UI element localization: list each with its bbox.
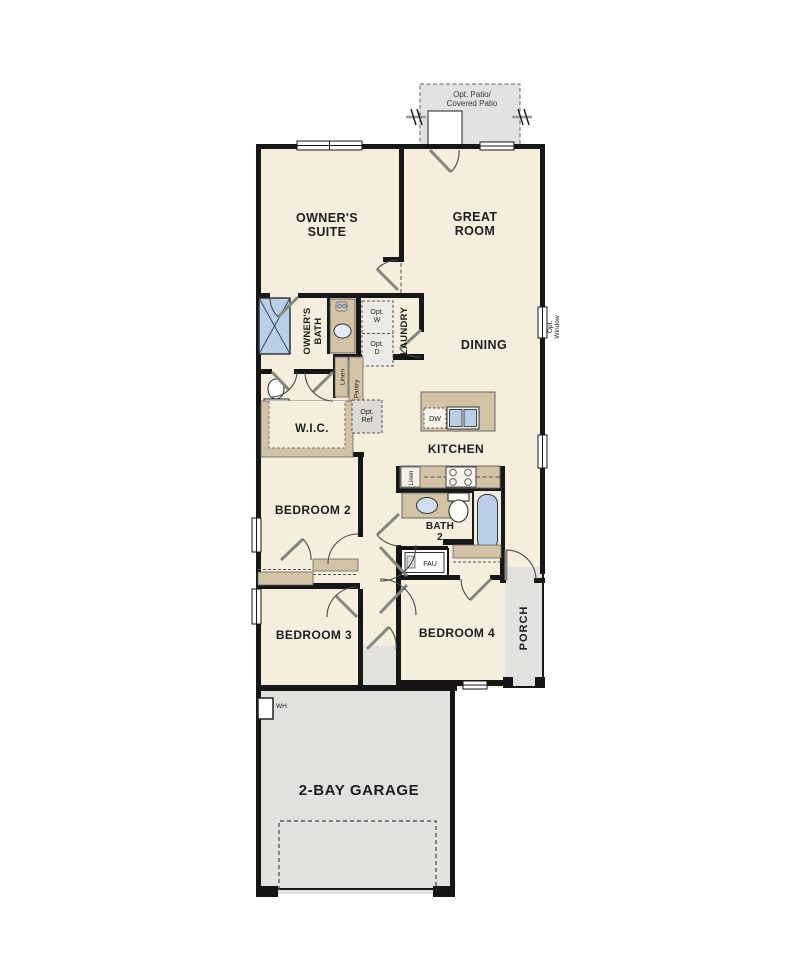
opt-washer-label: Opt. [370,309,383,316]
svg-text:ROOM: ROOM [455,224,496,238]
wic-label: W.I.C. [295,423,329,435]
island-sink [450,410,463,427]
dw-label: DW [429,416,441,423]
great-room-window [480,142,514,150]
porch-label: PORCH [518,606,530,651]
kitchen-island [421,392,495,431]
owners-suite-window [297,141,362,150]
svg-text:Pantry: Pantry [354,379,361,399]
bedroom4-label: BEDROOM 4 [419,626,495,640]
bath2-label: BATH [426,521,454,532]
svg-text:LAUNDRY: LAUNDRY [399,307,410,356]
great-room-label: GREAT [453,210,498,224]
bedroom2-label: BEDROOM 2 [275,503,351,517]
garage-label: 2-BAY GARAGE [299,782,420,799]
pantry-label: Pantry [354,379,361,399]
linen-hall-label: Linen [340,369,347,385]
dining-window [538,435,547,468]
floor-plan: Opt. Patio/ Covered Patio OWNER'S SUITE … [0,0,793,968]
fau-label: FAU [423,561,437,568]
dining-label: DINING [461,338,507,352]
svg-text:OWNER'S: OWNER'S [302,307,313,354]
bathtub [473,490,502,554]
opt-window-label: Opt. Window [547,315,561,338]
bedroom4-window [463,681,487,689]
shower [259,298,290,354]
owners-suite-label: OWNER'S [296,211,358,225]
svg-text:BATH: BATH [313,318,324,345]
kitchen-counter [400,466,500,488]
svg-text:W: W [374,317,381,324]
svg-text:D: D [374,349,379,356]
bedroom3-window [252,589,261,624]
svg-text:Linen: Linen [409,471,415,486]
sink [417,498,438,514]
svg-text:SUITE: SUITE [308,225,347,239]
bedroom2-window [252,518,261,552]
svg-text:Ref: Ref [362,417,373,424]
svg-text:Covered Patio: Covered Patio [447,99,498,108]
opt-ref-label: Opt. [360,409,373,416]
patio-landing [428,111,462,147]
svg-text:Opt.: Opt. [547,321,554,333]
floor-plan-drawing: Opt. Patio/ Covered Patio OWNER'S SUITE … [0,0,793,968]
owners-bath-vanity [330,299,355,353]
laundry-label: LAUNDRY [399,307,410,356]
sink [334,324,351,338]
svg-text:Linen: Linen [340,369,347,385]
bath2-toilet [448,493,469,522]
svg-text:2: 2 [437,532,443,543]
svg-text:Window: Window [554,315,561,338]
kitchen-label: KITCHEN [428,442,484,456]
patio-label: Opt. Patio/ [453,90,492,99]
svg-text:PORCH: PORCH [518,606,530,651]
linen-kitchen-label: Linen [409,471,415,486]
water-heater [258,698,273,719]
opt-window [538,307,547,338]
opt-dryer-label: Opt. [370,341,383,348]
wh-label: WH [276,703,287,710]
bedroom3-label: BEDROOM 3 [276,628,352,642]
